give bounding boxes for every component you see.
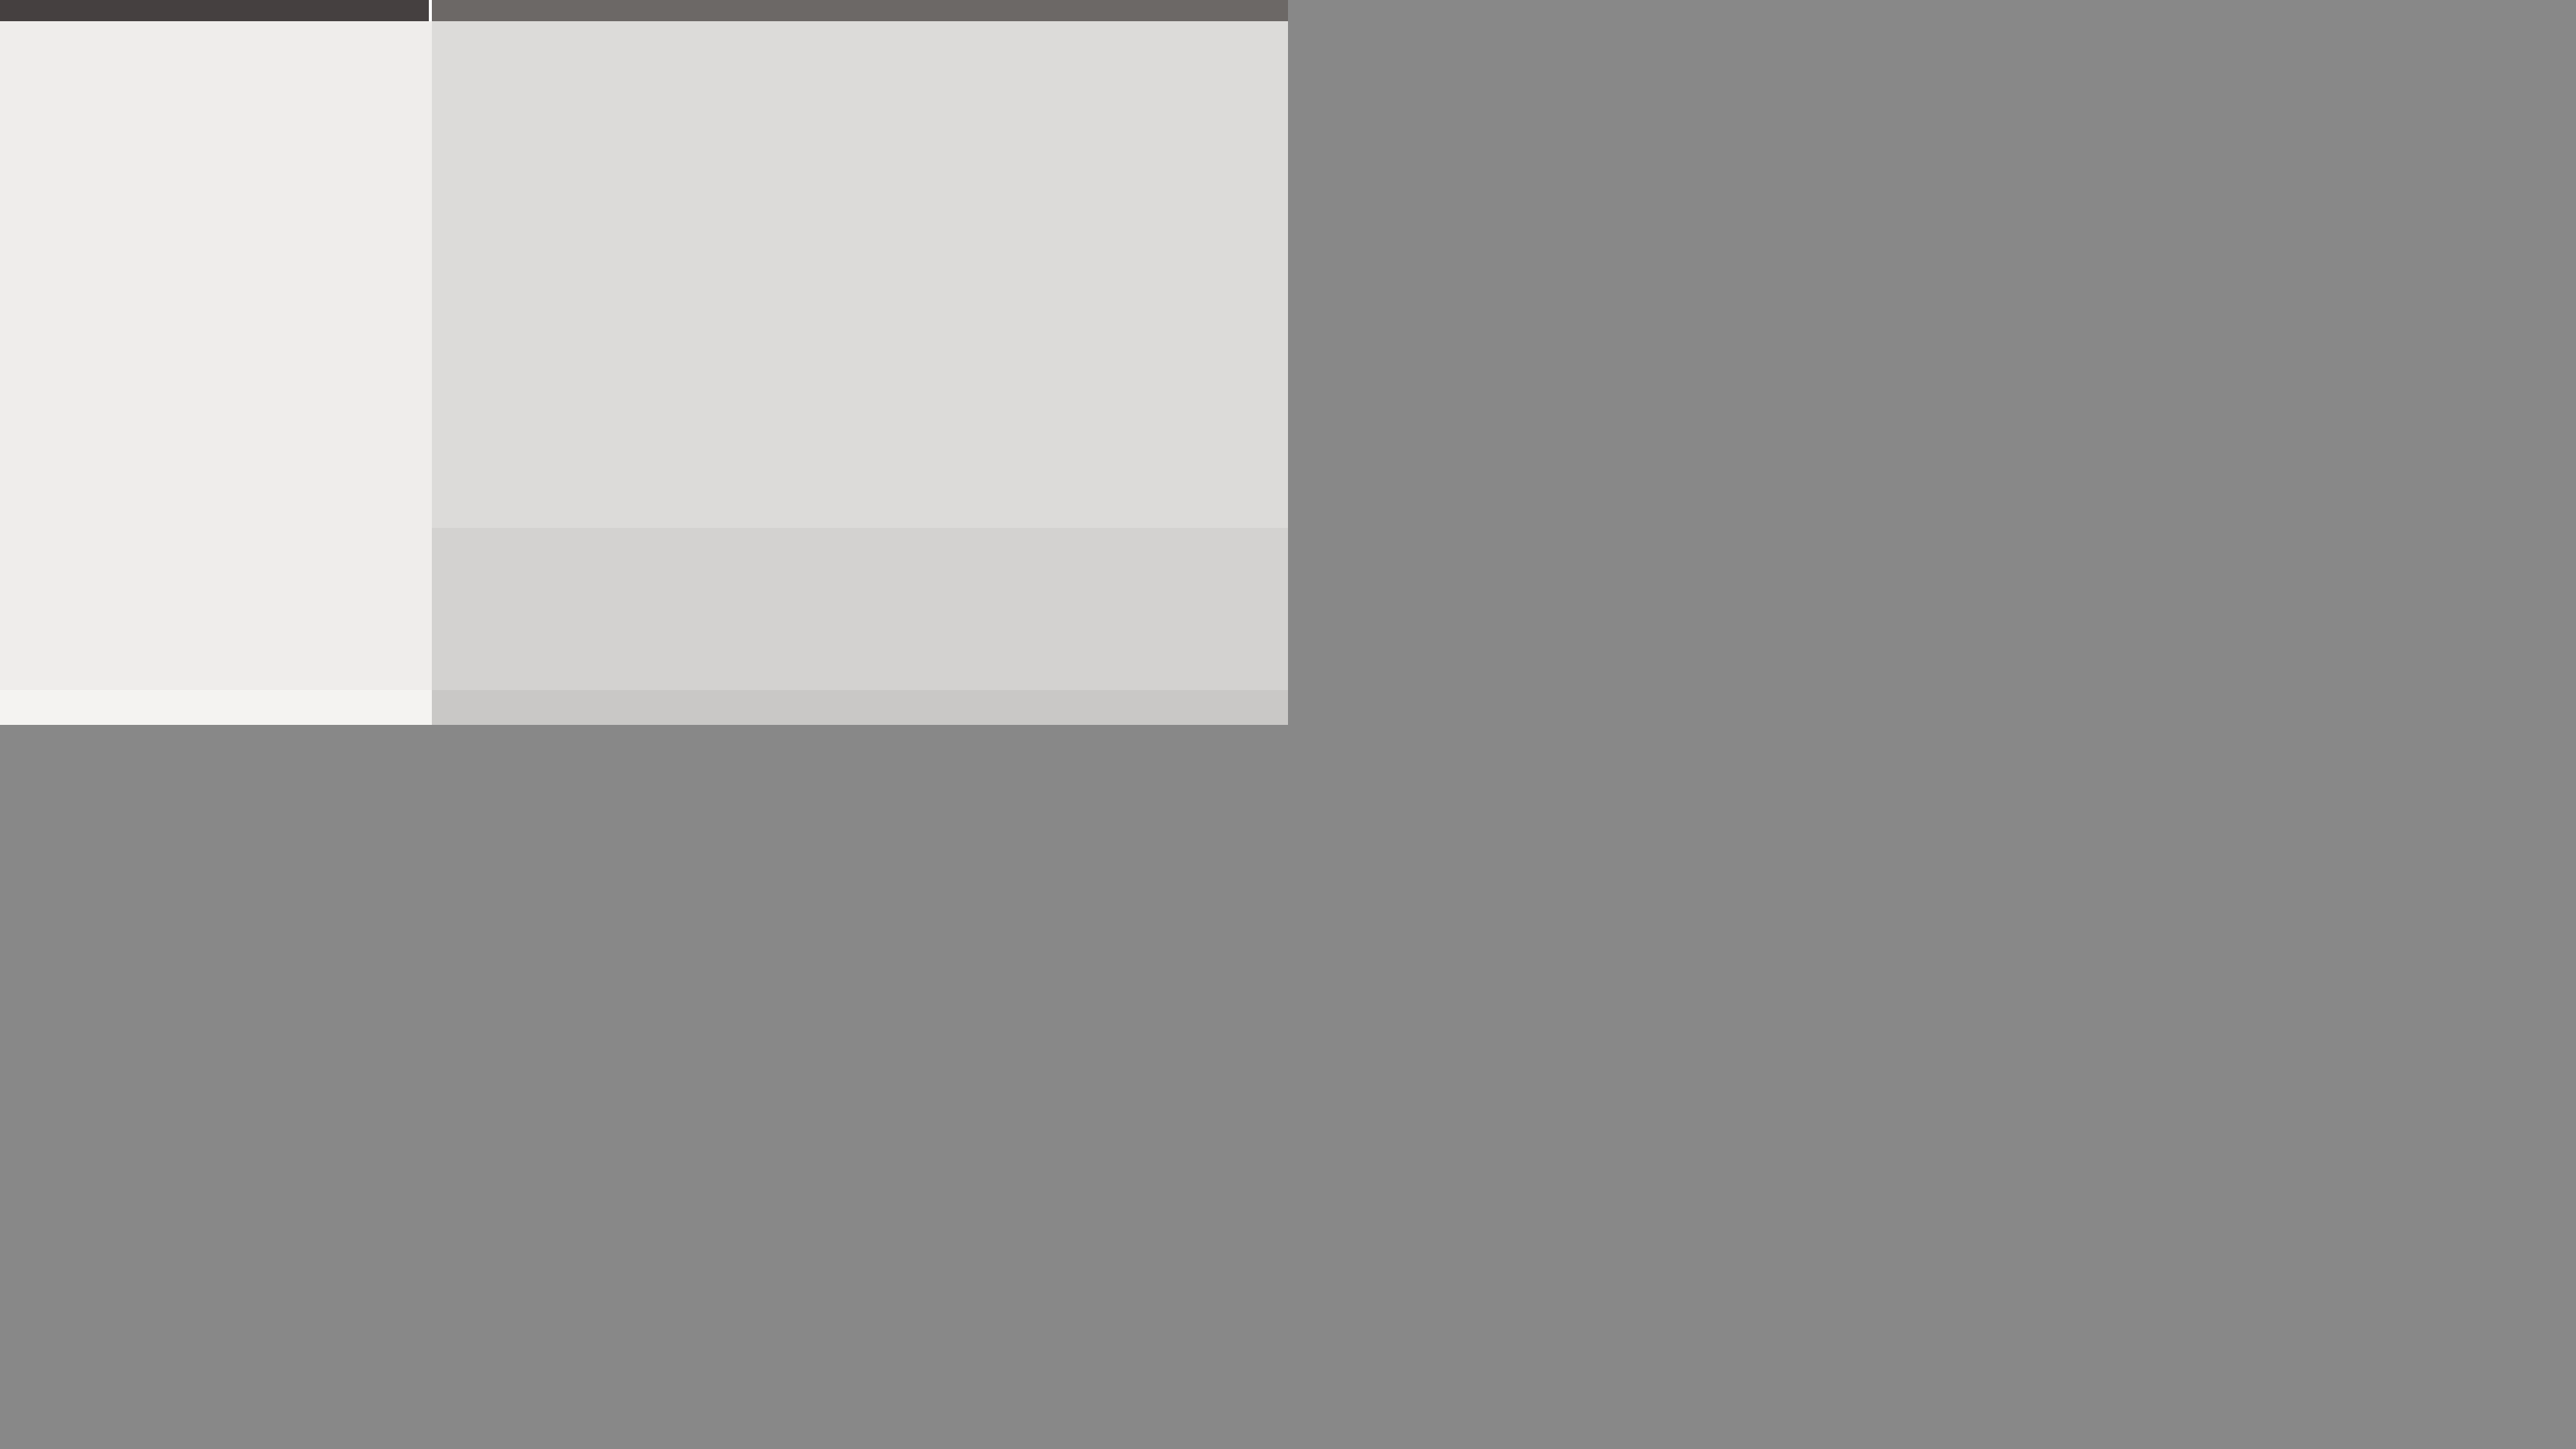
- map-legend: [0, 526, 432, 690]
- facility-icon-legend: [0, 690, 1288, 725]
- right-panel-header: [432, 0, 1288, 21]
- left-panel-header: [0, 0, 429, 21]
- floor-plans-area: [432, 21, 1288, 690]
- park-map: [0, 21, 432, 526]
- songshan-park-guide-poster: [0, 0, 1288, 725]
